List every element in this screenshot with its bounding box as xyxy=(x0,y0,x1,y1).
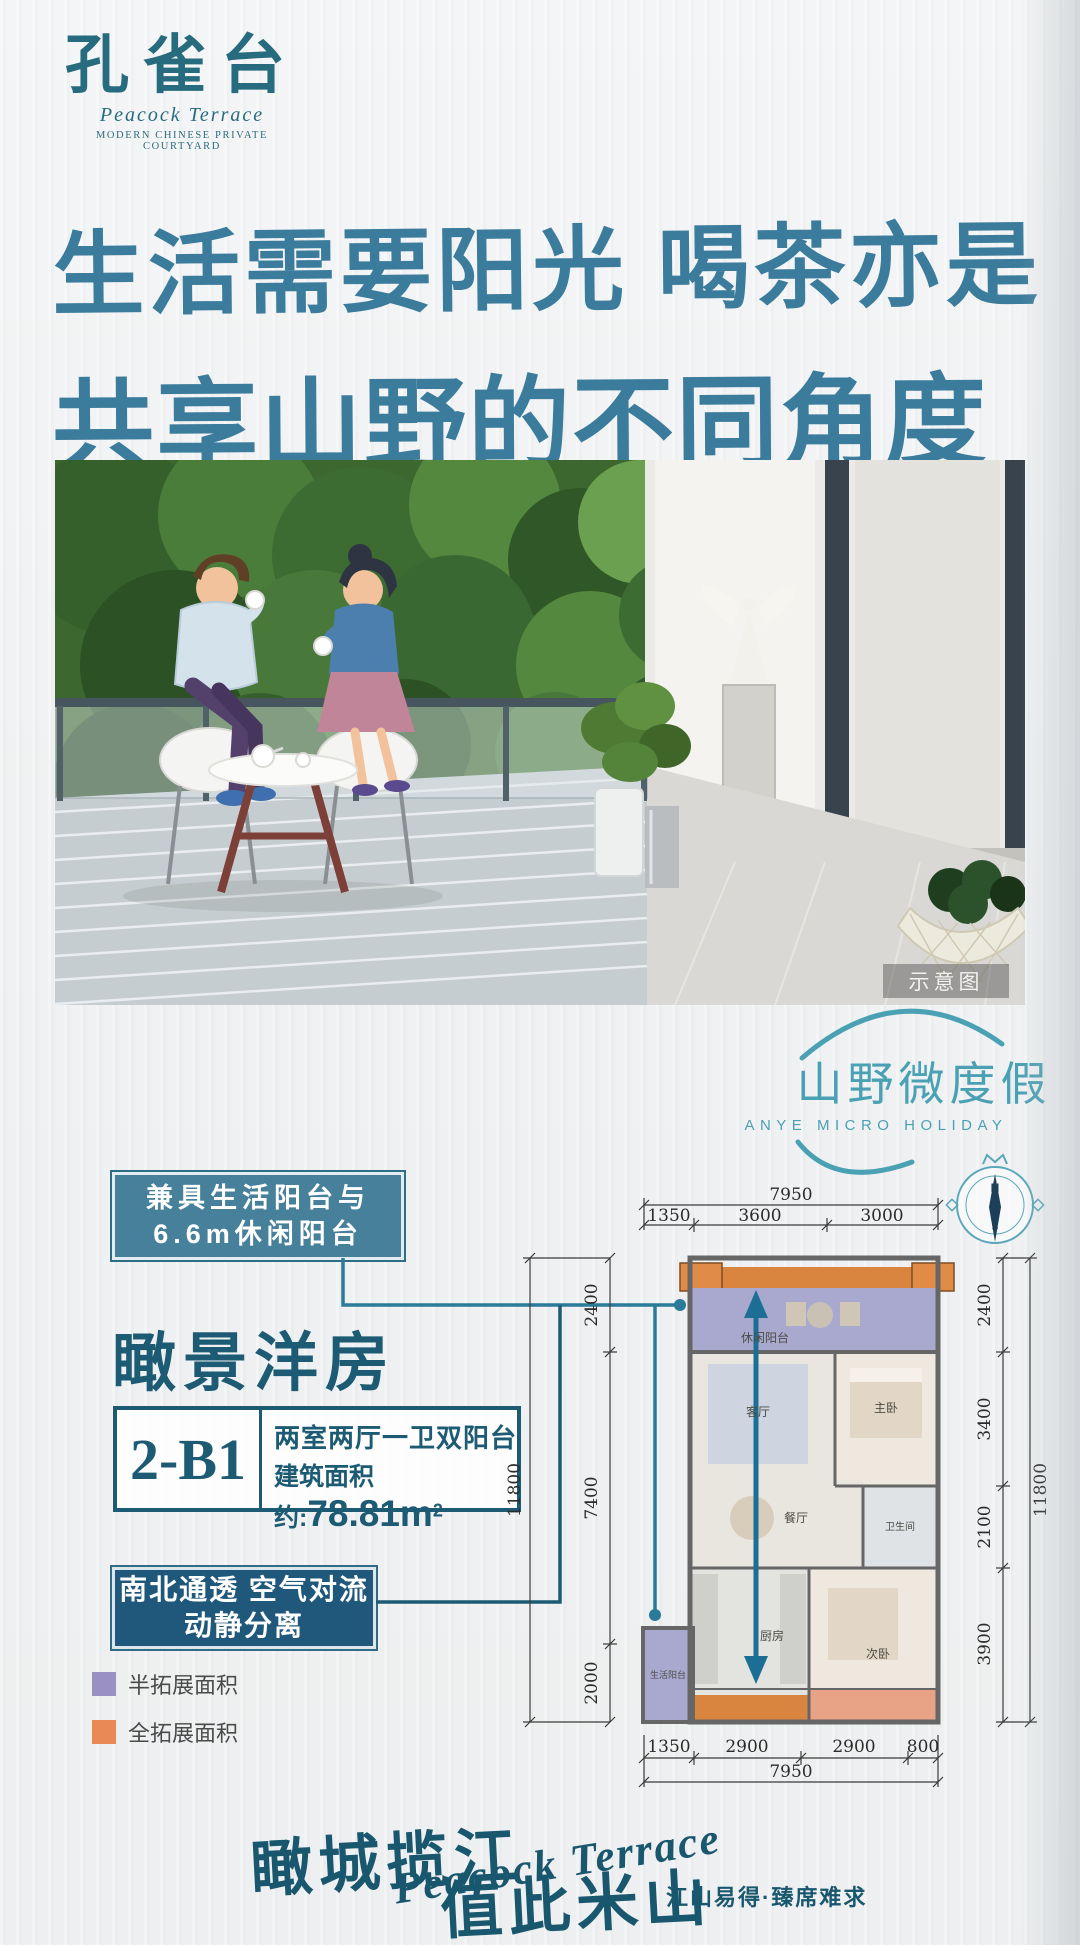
compass: N S xyxy=(946,1155,1043,1243)
shadow xyxy=(123,880,443,912)
brand-logo-subtitle: MODERN CHINESE PRIVATE COURTYARD xyxy=(57,130,307,152)
label-kitchen: 厨房 xyxy=(760,1628,784,1643)
compass-north: N xyxy=(991,1181,1000,1195)
dim-left-3: 2000 xyxy=(582,1661,602,1704)
dims-left-lines xyxy=(523,1253,617,1727)
watermark-text: 示意图 xyxy=(909,971,984,994)
holiday-title-cn: 山野微度假 xyxy=(797,1058,1052,1110)
dim-top-2: 3600 xyxy=(738,1206,781,1226)
headline: 生活需要阳光 喝茶亦是 共享山野的不同角度 xyxy=(52,196,1032,490)
area-full-extension-top xyxy=(692,1267,942,1288)
dim-left-total: 11800 xyxy=(505,1463,525,1517)
headline-line1: 生活需要阳光 喝茶亦是 xyxy=(51,191,1032,334)
dim-left-1: 2400 xyxy=(582,1283,602,1326)
dim-bottom-1: 1350 xyxy=(647,1737,690,1757)
dim-top-3: 3000 xyxy=(860,1206,903,1226)
label-second: 次卧 xyxy=(866,1647,890,1661)
dim-right-4: 3900 xyxy=(975,1622,995,1665)
holiday-title-en: SHANYE MICRO HOLIDAY xyxy=(740,1117,1007,1134)
compass-south: S xyxy=(992,1222,999,1233)
brand-logo-cn: 孔雀台 xyxy=(57,34,307,98)
dim-right-3: 2100 xyxy=(975,1505,995,1548)
poster: 孔雀台 Peacock Terrace MODERN CHINESE PRIVA… xyxy=(0,0,1080,1945)
watermark: 示意图 xyxy=(883,964,1009,998)
dim-bottom-3: 2900 xyxy=(832,1737,875,1757)
dim-bottom-total: 7950 xyxy=(769,1762,812,1782)
brand-logo: 孔雀台 Peacock Terrace MODERN CHINESE PRIVA… xyxy=(57,34,307,152)
label-master: 主卧 xyxy=(874,1401,898,1415)
dim-top-1: 1350 xyxy=(647,1206,690,1226)
balcony-scene: 示意图 xyxy=(55,460,1025,1005)
holiday-arc-top xyxy=(802,1011,1002,1058)
dim-bottom-4: 800 xyxy=(907,1737,939,1757)
footer-tagline: 江山易得·臻席难求 xyxy=(666,1880,867,1912)
area-full-extension-bottom xyxy=(692,1695,809,1722)
area-extension-bottom-right xyxy=(809,1689,938,1722)
label-living: 客厅 xyxy=(746,1404,770,1419)
plan-body: 休闲阳台 客厅 主卧 卫生间 餐厅 厨房 次卧 生活阳台 xyxy=(643,1258,954,1722)
label-dining: 餐厅 xyxy=(784,1510,808,1525)
dim-right-1: 2400 xyxy=(975,1283,995,1326)
dim-right-2: 3400 xyxy=(975,1397,995,1440)
label-service-balcony: 生活阳台 xyxy=(650,1669,686,1680)
label-bath: 卫生间 xyxy=(885,1520,915,1533)
leader-lines xyxy=(343,1258,686,1621)
label-leisure-balcony: 休闲阳台 xyxy=(741,1330,789,1345)
brand-logo-en: Peacock Terrace xyxy=(57,104,307,127)
dim-bottom-2: 2900 xyxy=(725,1737,768,1757)
dim-top-total: 7950 xyxy=(769,1185,812,1205)
dim-right-total: 11800 xyxy=(1031,1463,1051,1517)
dim-left-2: 7400 xyxy=(582,1476,602,1519)
room-dining xyxy=(690,1480,863,1568)
floorplan: N S 7950 1350 3600 3000 xyxy=(80,1150,1055,1800)
balcony-photo: 示意图 xyxy=(55,460,1025,1005)
